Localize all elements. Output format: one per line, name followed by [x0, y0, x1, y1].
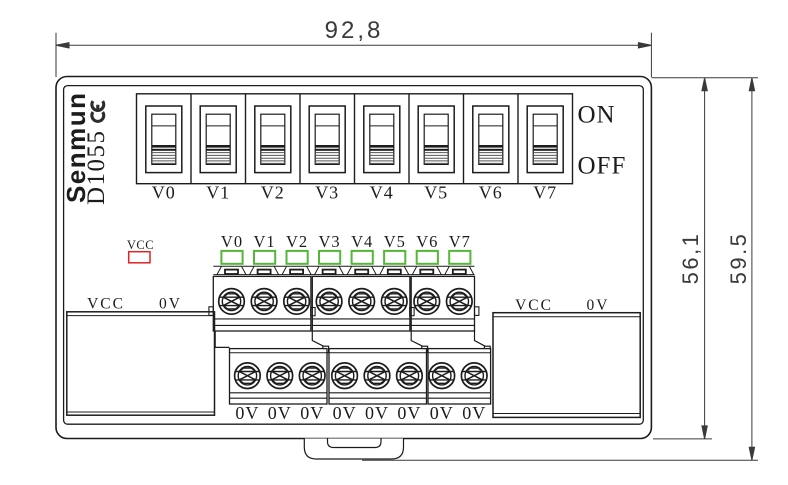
svg-text:ON: ON: [578, 102, 616, 129]
svg-text:V2: V2: [261, 183, 285, 203]
svg-text:0V: 0V: [333, 403, 357, 423]
svg-text:92,8: 92,8: [325, 17, 384, 44]
svg-text:59.5: 59.5: [726, 232, 751, 285]
svg-text:V6: V6: [416, 232, 438, 251]
svg-text:V5: V5: [424, 183, 448, 203]
svg-text:V3: V3: [315, 183, 339, 203]
svg-text:VCC: VCC: [87, 296, 125, 313]
svg-text:0V: 0V: [235, 403, 259, 423]
svg-text:V4: V4: [370, 183, 394, 203]
svg-text:0V: 0V: [462, 403, 486, 423]
svg-text:V7: V7: [449, 232, 471, 251]
svg-text:V6: V6: [479, 183, 503, 203]
svg-text:V7: V7: [533, 183, 557, 203]
svg-text:V0: V0: [221, 232, 243, 251]
svg-text:0V: 0V: [365, 403, 389, 423]
svg-text:0V: 0V: [397, 403, 421, 423]
svg-text:0V: 0V: [430, 403, 454, 423]
svg-text:V1: V1: [206, 183, 230, 203]
svg-text:OFF: OFF: [578, 153, 627, 180]
svg-text:VCC: VCC: [127, 238, 154, 252]
svg-text:0V: 0V: [159, 296, 182, 313]
svg-text:0V: 0V: [587, 297, 610, 314]
svg-text:0V: 0V: [300, 403, 324, 423]
svg-text:V0: V0: [152, 183, 176, 203]
svg-text:V4: V4: [351, 232, 373, 251]
svg-text:V2: V2: [286, 232, 308, 251]
svg-text:V3: V3: [319, 232, 341, 251]
svg-text:VCC: VCC: [515, 297, 553, 314]
svg-text:V1: V1: [254, 232, 276, 251]
svg-text:D1055: D1055: [83, 131, 110, 205]
svg-text:V5: V5: [384, 232, 406, 251]
svg-text:56,1: 56,1: [678, 232, 703, 285]
svg-text:0V: 0V: [268, 403, 292, 423]
